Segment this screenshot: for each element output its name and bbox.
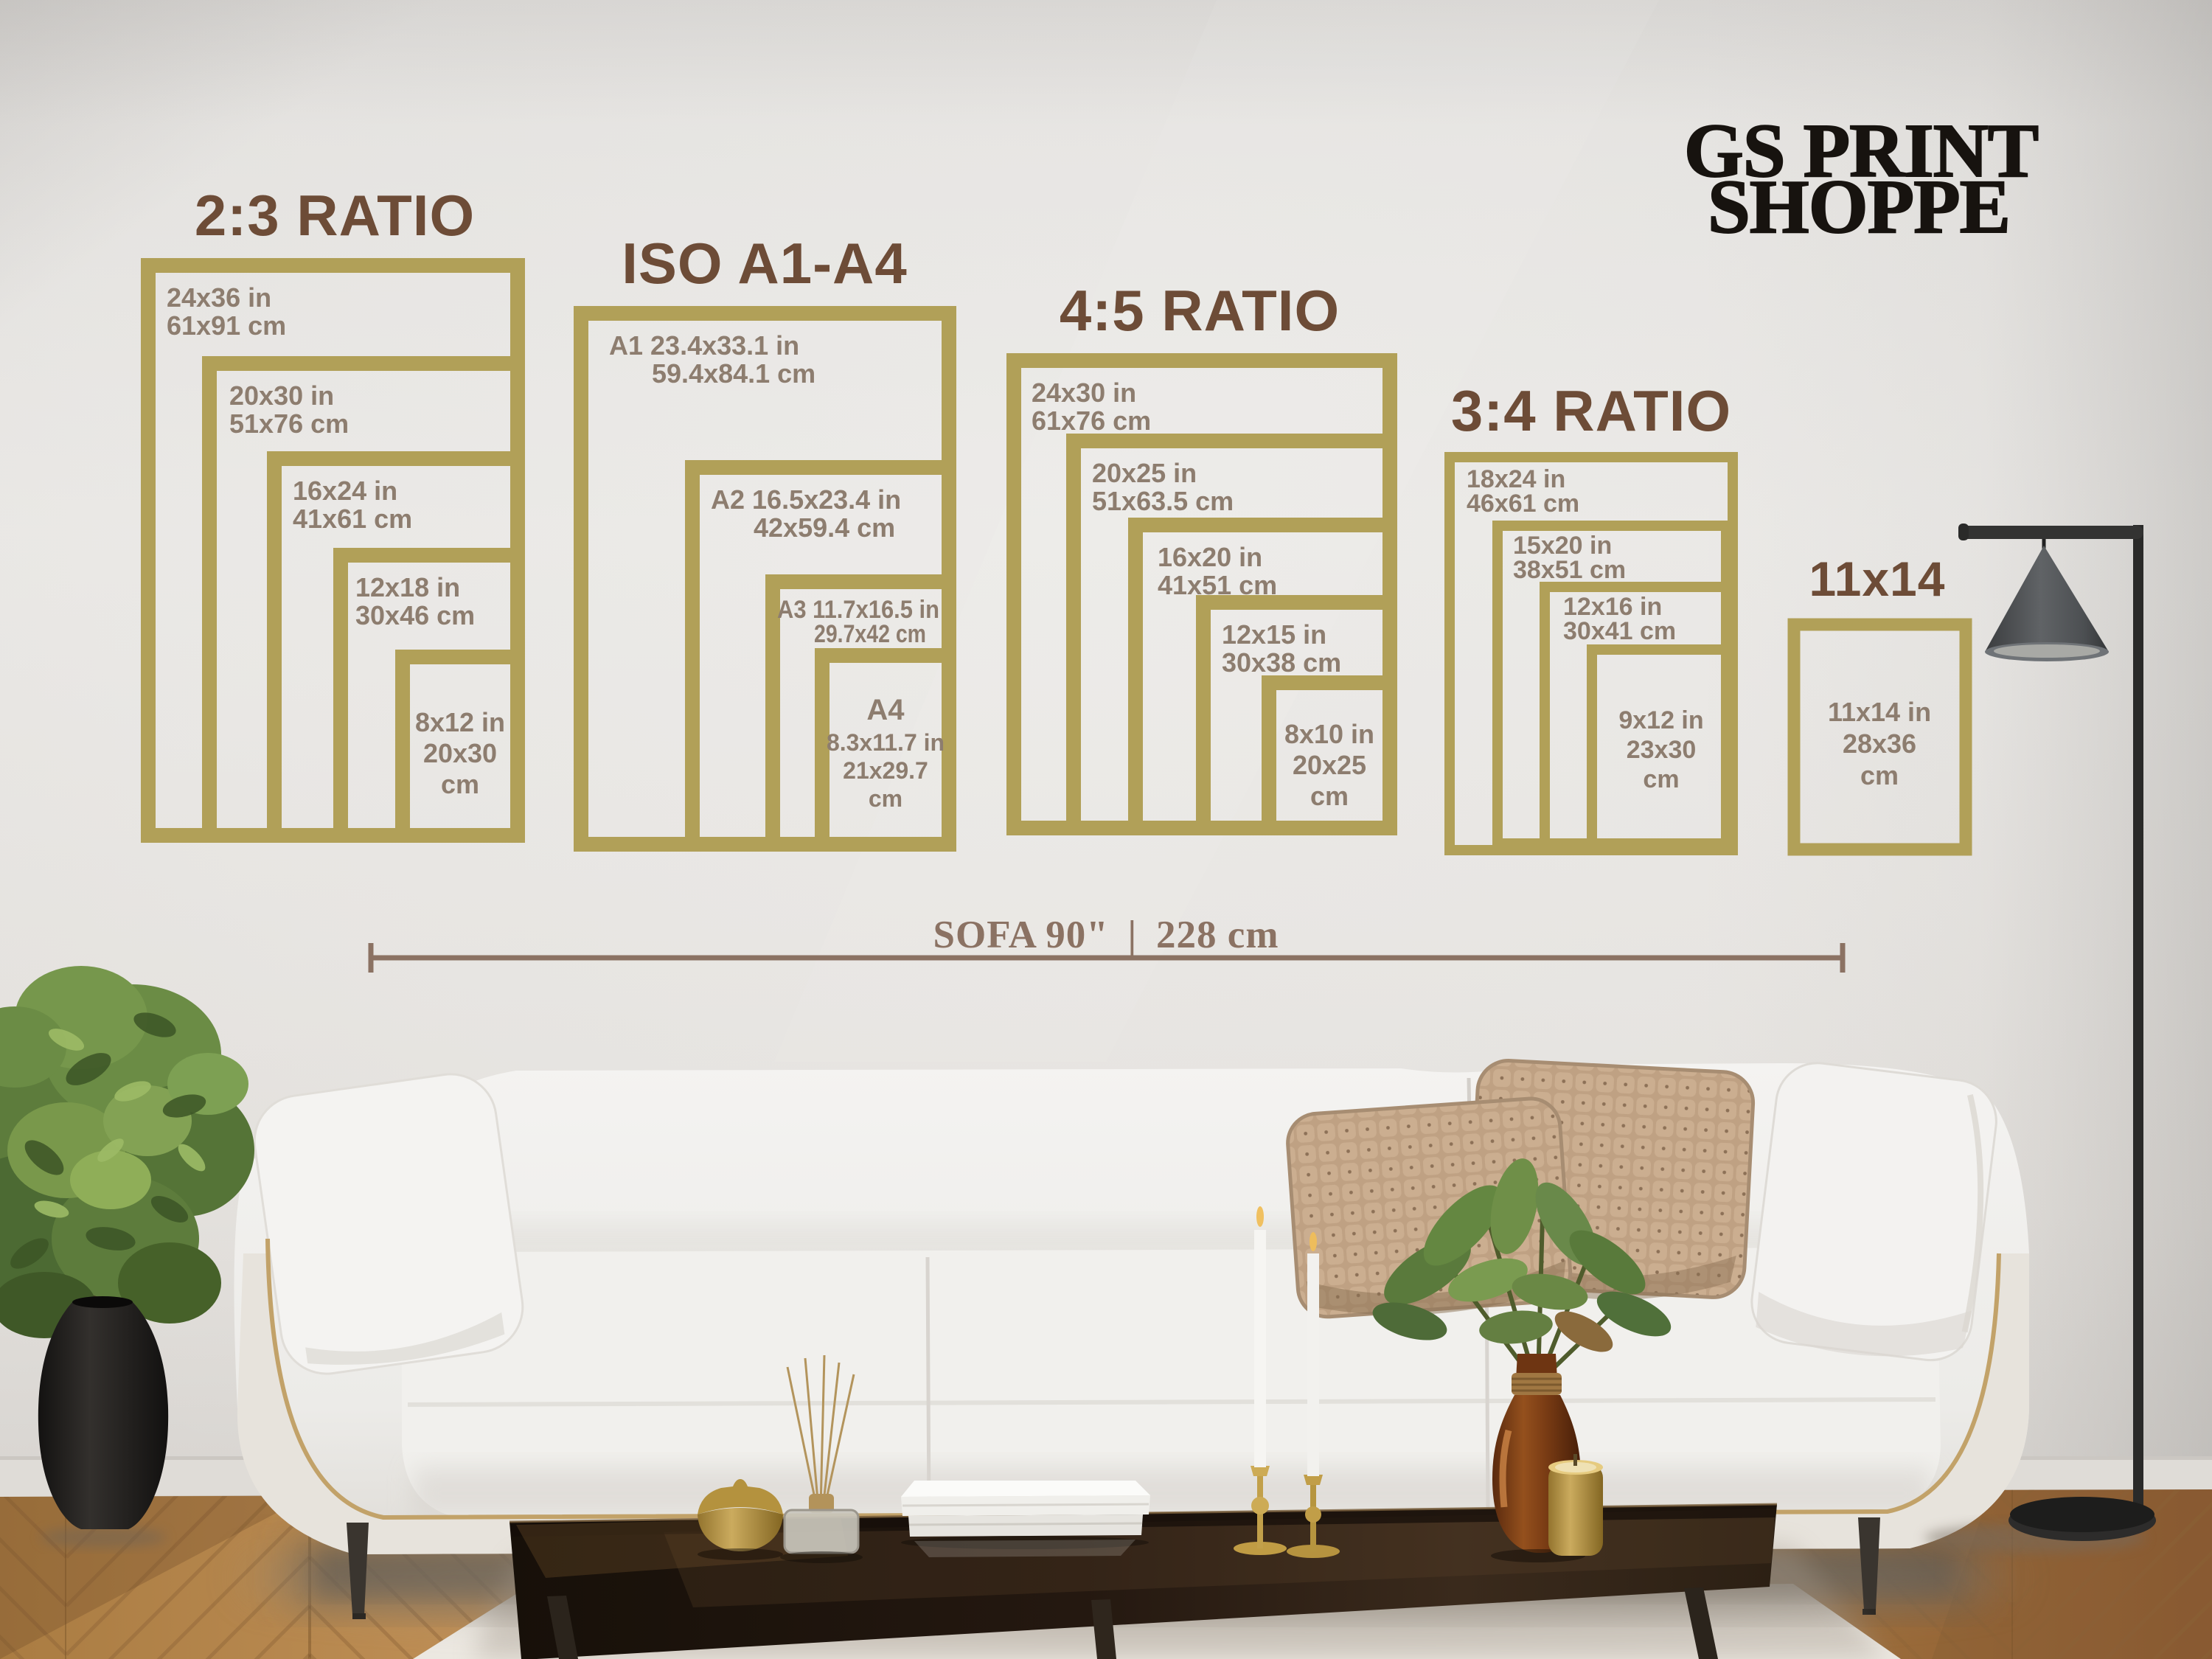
- svg-text:20x25 in: 20x25 in: [1092, 458, 1197, 488]
- svg-text:21x29.7: 21x29.7: [843, 757, 928, 784]
- svg-text:41x51 cm: 41x51 cm: [1158, 570, 1277, 600]
- svg-text:11x14: 11x14: [1809, 552, 1946, 606]
- svg-text:46x61 cm: 46x61 cm: [1467, 490, 1579, 518]
- svg-text:30x46 cm: 30x46 cm: [355, 600, 475, 630]
- svg-text:cm: cm: [869, 785, 902, 812]
- svg-text:A2 16.5x23.4 in: A2 16.5x23.4 in: [711, 484, 901, 515]
- svg-text:51x63.5 cm: 51x63.5 cm: [1092, 486, 1234, 516]
- svg-text:20x30 in: 20x30 in: [229, 380, 334, 411]
- svg-text:2:3 RATIO: 2:3 RATIO: [195, 183, 475, 248]
- svg-text:cm: cm: [1310, 781, 1349, 811]
- svg-text:cm: cm: [441, 769, 479, 799]
- svg-text:59.4x84.1 cm: 59.4x84.1 cm: [652, 358, 815, 389]
- svg-text:29.7x42 cm: 29.7x42 cm: [814, 620, 926, 648]
- svg-text:61x91 cm: 61x91 cm: [167, 310, 286, 341]
- svg-text:16x24 in: 16x24 in: [293, 476, 397, 506]
- svg-text:12x18 in: 12x18 in: [355, 572, 460, 602]
- svg-text:8x10 in: 8x10 in: [1284, 719, 1374, 749]
- svg-text:ISO A1-A4: ISO A1-A4: [622, 231, 908, 296]
- svg-text:cm: cm: [1643, 765, 1679, 793]
- svg-text:3:4 RATIO: 3:4 RATIO: [1451, 378, 1731, 443]
- svg-text:38x51 cm: 38x51 cm: [1513, 556, 1626, 584]
- svg-text:28x36: 28x36: [1843, 728, 1916, 759]
- svg-text:16x20 in: 16x20 in: [1158, 542, 1262, 572]
- svg-text:42x59.4 cm: 42x59.4 cm: [754, 512, 895, 543]
- svg-text:24x30 in: 24x30 in: [1032, 378, 1136, 408]
- svg-text:11x14 in: 11x14 in: [1828, 697, 1931, 727]
- svg-text:51x76 cm: 51x76 cm: [229, 408, 349, 439]
- svg-text:A4: A4: [866, 694, 905, 726]
- svg-text:30x41 cm: 30x41 cm: [1563, 617, 1676, 645]
- svg-text:20x30: 20x30: [423, 738, 497, 768]
- svg-text:12x15 in: 12x15 in: [1222, 619, 1326, 650]
- svg-text:61x76 cm: 61x76 cm: [1032, 406, 1151, 436]
- svg-text:9x12 in: 9x12 in: [1618, 706, 1703, 734]
- svg-text:41x61 cm: 41x61 cm: [293, 504, 412, 534]
- svg-text:SHOPPE: SHOPPE: [1708, 164, 2010, 249]
- svg-text:24x36 in: 24x36 in: [167, 282, 271, 313]
- svg-text:SOFA 90" | 228 cm: SOFA 90" | 228 cm: [933, 914, 1279, 956]
- svg-text:8.3x11.7 in: 8.3x11.7 in: [827, 729, 945, 756]
- svg-text:4:5 RATIO: 4:5 RATIO: [1060, 278, 1340, 343]
- svg-text:20x25: 20x25: [1293, 750, 1366, 780]
- svg-text:8x12 in: 8x12 in: [415, 707, 505, 737]
- svg-text:23x30: 23x30: [1627, 736, 1697, 764]
- svg-text:30x38 cm: 30x38 cm: [1222, 647, 1341, 678]
- svg-text:cm: cm: [1860, 760, 1899, 790]
- svg-text:A1 23.4x33.1 in: A1 23.4x33.1 in: [609, 330, 799, 361]
